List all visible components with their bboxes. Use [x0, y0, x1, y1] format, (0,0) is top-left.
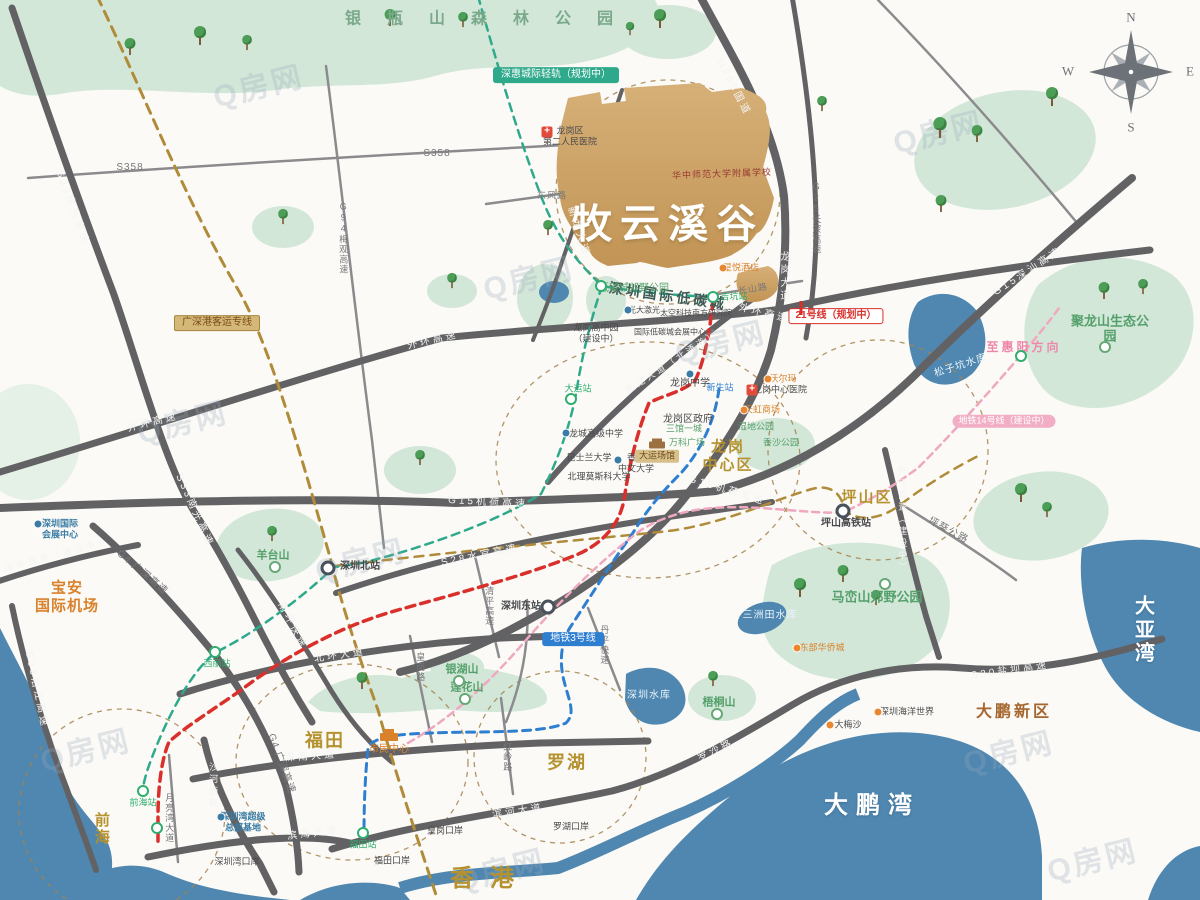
label-rd-w: 罗沙路	[696, 737, 736, 764]
st-d-icon	[321, 561, 336, 576]
label-poi-b: 深圳湾超级 总部基地	[220, 811, 265, 832]
label-rd-d: 丹平快速	[599, 625, 610, 665]
tree-icon	[1137, 279, 1148, 294]
label-poi-o: 市民中心	[369, 744, 409, 756]
dot-o-icon	[719, 264, 728, 273]
watermark: Q房网	[208, 51, 308, 116]
dot-o-icon	[793, 644, 802, 653]
label-rd-d: G4 广深高速	[265, 732, 298, 795]
watermark: Q房网	[132, 387, 232, 452]
tree-icon	[542, 220, 553, 235]
dot-o-icon	[826, 721, 835, 730]
dot-b-icon	[614, 456, 623, 465]
label-rd-w: 南坪快速	[275, 600, 310, 651]
label-rd-w: 滨海大道	[286, 825, 339, 843]
label-water-t: 深圳水库	[627, 690, 671, 702]
label-st-g: 大运站	[564, 384, 591, 395]
label-poi: 昆士兰大学	[566, 453, 611, 464]
label-rd-w: 外环高速（建设中）	[897, 466, 908, 574]
label-poi: 香港 中文大学	[618, 452, 654, 473]
label-rd-w: 深南大道	[285, 749, 338, 764]
st-g-icon	[1015, 350, 1027, 362]
label-rd-w: G15机荷高速	[448, 495, 528, 511]
label-rd-d: 皇岗路	[415, 652, 426, 682]
label-tag-tan: 大运场馆	[635, 450, 679, 463]
watermark: Q房网	[888, 97, 988, 162]
tick-icon	[800, 301, 803, 315]
st-g-icon	[209, 646, 221, 658]
map-labels-layer: Q房网Q房网Q房网Q房网Q房网Q房网Q房网Q房网Q房网Q房网银瓶山森林公园华中师…	[0, 0, 1200, 900]
st-g-icon	[707, 291, 719, 303]
tree-icon	[277, 209, 288, 224]
label-rd-w: G15深汕高速	[991, 245, 1064, 298]
st-g-icon	[595, 280, 607, 292]
label-poi: 深圳湾口岸	[214, 857, 259, 868]
label-region-gold: 前海	[92, 812, 110, 846]
cross-icon	[747, 385, 758, 396]
tree-icon	[870, 590, 881, 605]
label-compass: N	[1126, 9, 1135, 24]
label-badge-blue: 地铁3号线	[542, 632, 604, 646]
tree-icon	[457, 12, 468, 27]
label-rd-w: 深中通道（建设中）	[3, 536, 110, 574]
st-g-icon	[137, 785, 149, 797]
label-region-gold: 龙岗 中心区	[702, 438, 753, 473]
watermark: Q房网	[310, 525, 410, 590]
label-rd-d: 红岭路	[502, 742, 513, 772]
label-rd-w: S30盐坝高速	[970, 660, 1050, 683]
tree-icon	[193, 26, 207, 45]
label-poi: 太空科技南方研究院	[660, 308, 732, 317]
label-poi: 龙岗高中园 （建设中）	[573, 322, 618, 343]
label-rd-w: 沙河西路	[208, 762, 219, 810]
label-rd-d: 月亮湾大道	[164, 793, 175, 843]
label-poi-o: 星悦酒店	[723, 263, 759, 274]
dot-b-icon	[217, 813, 226, 822]
label-poi-b: 深圳国际 会展中心	[42, 518, 78, 539]
label-region-gold: 香港	[450, 865, 530, 893]
label-logo-script: 华中师范大学附属学校	[672, 167, 772, 181]
label-poi-o: 沃尔玛	[769, 374, 796, 385]
label-pink-t: 至惠阳方向	[986, 340, 1061, 354]
label-poi-o: 天虹商场	[744, 405, 780, 416]
label-park-sm: 梧桐山	[703, 697, 736, 710]
label-poi-g: 三馆一城	[666, 424, 702, 435]
tree-icon	[971, 125, 984, 142]
label-water-t: 三洲田水库	[743, 610, 798, 622]
label-rd-w: 北环大道	[313, 647, 366, 666]
label-st-g: 福田站	[349, 840, 376, 851]
label-region-brown: 大鹏新区	[976, 704, 1052, 723]
label-poi: 深圳海洋世界	[880, 707, 934, 718]
tree-icon	[935, 195, 948, 212]
label-st-g: 西丽站	[203, 659, 230, 670]
st-g-icon	[151, 822, 163, 834]
bldg-o-icon	[380, 733, 398, 741]
dot-b-icon	[562, 429, 571, 438]
label-water-t: 松子坑水库	[933, 352, 989, 380]
label-region-gold: 坪山区	[841, 489, 892, 507]
park-icon	[269, 561, 281, 573]
park-icon	[711, 708, 723, 720]
tree-icon	[356, 672, 369, 689]
label-rd-d: G4 广深高速	[114, 548, 170, 598]
label-badge-red: 21号线（规划中）	[788, 308, 883, 324]
st-g-icon	[565, 393, 577, 405]
label-st-g: 吉坑站	[720, 292, 747, 303]
label-rd-d: 长山路	[737, 281, 768, 296]
label-st-d: 深圳北站	[340, 561, 380, 573]
label-rd-d: 清平高速	[484, 586, 495, 626]
label-compass: E	[1186, 63, 1194, 78]
label-rd-d: 坪葵公路	[926, 515, 970, 546]
label-poi-g: 万科广场	[669, 438, 705, 449]
label-st-d: 深圳东站	[501, 601, 541, 613]
st-d-icon	[541, 600, 556, 615]
bldg-br-icon	[649, 442, 665, 449]
label-rd-w: S33南光高速	[53, 169, 91, 247]
label-rd-d: S358	[116, 162, 143, 174]
dot-o-icon	[874, 708, 883, 717]
label-rd-w: 外环高速	[126, 411, 179, 435]
label-rd-w: 新龙大道	[564, 205, 591, 258]
st-g-icon	[357, 827, 369, 839]
label-poi-o: 东部华侨城	[799, 643, 844, 654]
label-park: 马峦山郊野公园	[831, 589, 922, 604]
label-rd-d: S358	[423, 148, 450, 160]
label-st-b: 新生站	[706, 383, 733, 394]
park-icon	[1099, 341, 1111, 353]
park-icon	[879, 578, 891, 590]
tree-icon	[816, 96, 827, 111]
label-rd-w: S28水官高速	[440, 543, 520, 570]
dot-b-icon	[624, 306, 633, 315]
label-rd-d: G25长深高速	[811, 182, 822, 255]
label-poi: 龙城高级中学	[569, 429, 623, 440]
label-region-gold: 福田	[305, 730, 345, 751]
st-d-icon	[836, 504, 851, 519]
dot-o-icon	[764, 375, 773, 384]
label-poi: 皇岗口岸	[427, 826, 463, 837]
label-rd-d: 东风路	[537, 191, 567, 202]
watermark: Q房网	[450, 835, 550, 900]
watermark: Q房网	[478, 243, 578, 308]
dot-b-icon	[34, 520, 43, 529]
label-rd-w: S33南光高速	[173, 473, 216, 550]
tree-icon	[414, 450, 425, 465]
label-poi: 龙岗区 第二人民医院	[543, 125, 597, 146]
label-logo-name: 牧云溪谷	[572, 201, 764, 248]
label-compass: S	[1127, 119, 1134, 134]
tree-icon	[446, 273, 457, 288]
label-poi-g: 低碳城郊野公园	[599, 283, 669, 295]
tree-icon	[1098, 282, 1111, 299]
label-rd-w: 外环高速	[406, 329, 459, 352]
label-park-sm: 银湖山	[446, 664, 479, 677]
label-lowcarbon: 深圳国际低碳城	[608, 280, 728, 313]
label-poi-g: 香沙公园	[763, 438, 799, 449]
label-rd-d: G94梅观高速	[338, 202, 349, 275]
cross-icon	[542, 127, 553, 138]
label-st-g: 前海站	[129, 798, 156, 809]
watermark: Q房网	[35, 715, 135, 780]
tree-icon	[837, 565, 850, 582]
tree-icon	[241, 35, 252, 50]
tree-icon	[707, 671, 718, 686]
label-park-sm: 莲花山	[451, 682, 484, 695]
label-park: 聚龙山生态公园	[1065, 314, 1155, 345]
label-poi: 国际低碳城会展中心	[634, 327, 706, 336]
tree-icon	[653, 9, 667, 28]
label-rd-w: S33沿江高速	[22, 650, 50, 730]
location-map: Q房网Q房网Q房网Q房网Q房网Q房网Q房网Q房网Q房网Q房网银瓶山森林公园华中师…	[0, 0, 1200, 900]
dot-o-icon	[740, 406, 749, 415]
label-rd-w: 外环高速	[737, 302, 790, 326]
label-region-orange: 宝安 国际机场	[35, 579, 99, 614]
label-rd-w: G15机荷高速	[687, 474, 767, 509]
tree-icon	[266, 526, 277, 541]
label-poi: 福田口岸	[374, 856, 410, 867]
watermark: Q房网	[670, 307, 770, 372]
label-badge-pink: 地铁14号线（建设中）	[952, 415, 1055, 428]
label-park-sm: 羊台山	[257, 550, 290, 563]
label-region-white: 大亚湾	[1124, 596, 1175, 667]
label-poi: 龙岗区政府	[663, 414, 713, 426]
tree-icon	[1014, 483, 1028, 502]
tree-icon	[793, 578, 807, 597]
label-region-gold: 罗湖	[547, 752, 587, 773]
label-rd-w: 龙岗大道	[777, 251, 789, 303]
label-poi: 大梅沙	[834, 720, 861, 731]
label-rd-w: 盐龙大道（北通道）	[624, 328, 720, 396]
label-poi: 罗湖口岸	[553, 822, 589, 833]
label-st-d: 坪山高铁站	[821, 518, 871, 530]
label-rd-w: G205国道	[713, 58, 753, 119]
label-region-white: 大鹏湾	[824, 792, 920, 820]
tree-icon	[625, 22, 635, 35]
dot-b-icon	[686, 370, 695, 379]
label-poi: 龙岗中学	[670, 378, 710, 390]
tree-icon	[1045, 87, 1059, 106]
label-compass: W	[1062, 63, 1074, 78]
tree-icon	[932, 117, 947, 138]
label-poi-g: 湿地公园	[738, 422, 774, 433]
tree-icon	[124, 38, 137, 55]
tree-icon	[384, 9, 397, 26]
park-icon	[459, 693, 471, 705]
label-forest: 银瓶山森林公园	[345, 11, 639, 30]
watermark: Q房网	[1042, 825, 1142, 890]
watermark: Q房网	[958, 717, 1058, 782]
label-rd-w: 滨河大道	[491, 803, 544, 822]
label-badge-gold: 广深港客运专线	[174, 315, 260, 331]
tree-icon	[1041, 502, 1052, 517]
label-poi: 北理莫斯科大学	[567, 472, 630, 483]
label-poi: 龙岗中心医院	[753, 385, 807, 396]
label-poi: 光大激光	[628, 305, 660, 314]
label-badge-teal: 深惠城际轻轨（规划中）	[493, 67, 619, 83]
park-icon	[453, 675, 465, 687]
